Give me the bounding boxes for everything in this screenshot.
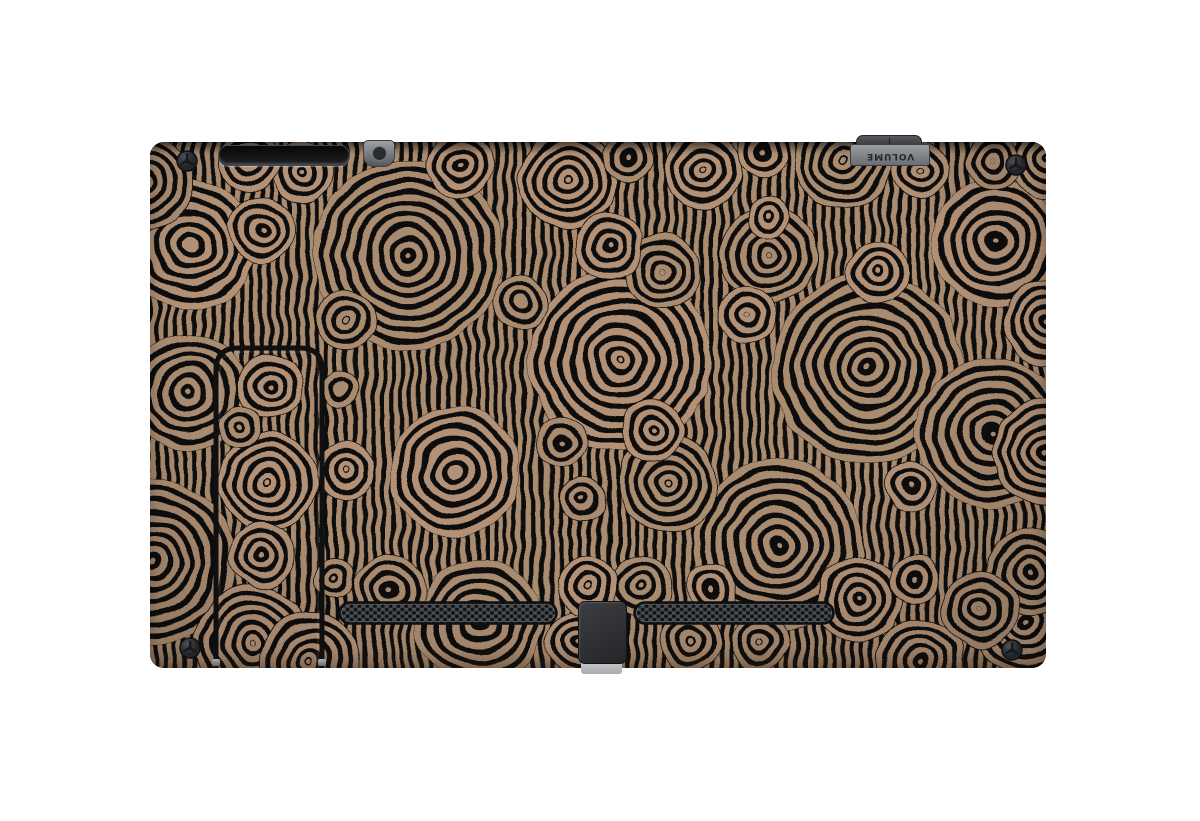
headphone-jack <box>363 140 395 167</box>
vignette-overlay <box>150 142 1046 668</box>
volume-label-plate: VOLUME <box>850 144 930 166</box>
skin-pattern-area <box>150 142 1046 668</box>
top-vent-slot <box>218 145 350 166</box>
headphone-jack-hole <box>372 146 387 161</box>
product-render: VOLUME <box>0 0 1200 821</box>
vent-grille-left <box>338 601 558 625</box>
triwing-screw-bottom-left <box>178 636 202 660</box>
triwing-screw-top-left <box>175 149 199 173</box>
volume-label: VOLUME <box>866 151 914 160</box>
triwing-screw-top-right <box>1004 153 1028 177</box>
vent-grille-right <box>633 601 835 625</box>
switch-console-back: VOLUME <box>150 142 1046 668</box>
triwing-screw-bottom-right <box>1000 638 1024 662</box>
usb-port-block <box>578 601 627 664</box>
